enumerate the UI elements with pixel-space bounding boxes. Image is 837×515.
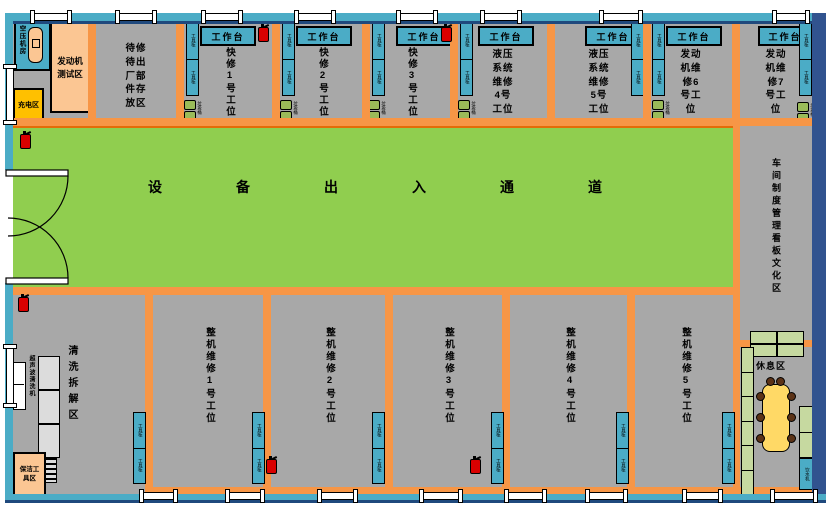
window	[588, 492, 625, 500]
tool-cabinet: 工具柜工具柜	[372, 412, 385, 484]
bay-bottom-5-label: 整机维修5号工位	[678, 327, 692, 425]
room-air-compressor: 空压机房	[14, 21, 51, 71]
rest-area-label: 休息区	[756, 359, 786, 372]
window	[118, 13, 154, 21]
window	[320, 492, 355, 500]
rest-lockers	[741, 347, 754, 495]
bay-bottom-1-label: 整机维修1号工位	[202, 327, 216, 425]
window	[297, 13, 333, 21]
equipment-passage	[13, 126, 739, 291]
chair	[787, 434, 796, 443]
wall-right	[812, 13, 826, 503]
wall-bottom-outer-line	[5, 500, 826, 503]
window	[204, 13, 240, 21]
bay-divider	[547, 13, 555, 126]
bay-divider	[88, 13, 96, 126]
bay-top-7-label: 发动 机维 修7 号工 位	[756, 48, 796, 117]
window	[773, 492, 815, 500]
window	[685, 492, 720, 500]
tool-cabinet: 工具柜工具柜	[133, 412, 146, 484]
cleaning-machine-label: 超声波清洗机	[27, 355, 36, 397]
bay-divider	[385, 293, 393, 494]
fire-extinguisher-icon	[18, 297, 29, 312]
bay-divider	[272, 13, 280, 126]
air-compressor-label: 空压机房	[16, 25, 26, 55]
tool-cabinet: 工具柜工具柜	[252, 412, 265, 484]
workbench-bay4: 工作台	[478, 26, 534, 46]
tool-cabinet: 工具柜工具柜	[799, 22, 812, 96]
bay-divider	[362, 13, 370, 126]
charging-label: 充电区	[18, 100, 39, 110]
bay-top-2-label: 快修2号工位	[315, 47, 329, 118]
bay-top-3-label: 快修3号工位	[404, 47, 418, 118]
bay-top-1-label: 快修1号工位	[222, 47, 236, 118]
bay-divider	[145, 293, 153, 494]
wash-sink-divider	[13, 384, 24, 385]
engine-test-label: 发动机 测试区	[57, 55, 83, 81]
ultrasonic-cleaning-machine	[38, 356, 60, 458]
window	[228, 492, 262, 500]
chair	[787, 413, 796, 422]
passage-label: 设备出入通道	[148, 177, 676, 197]
room-cleaning-tools: 保洁工 具区	[13, 452, 46, 496]
window	[142, 492, 175, 500]
pending-storage-label: 待修 待出 厂部 件存 放区	[113, 42, 159, 111]
bay-divider	[732, 13, 740, 126]
window	[399, 13, 435, 21]
window	[6, 347, 14, 405]
window	[6, 67, 14, 122]
window	[507, 492, 544, 500]
tool-cabinet: 工具柜工具柜	[491, 412, 504, 484]
tool-cabinet: 工具柜工具柜	[372, 22, 385, 96]
bay-top-5-label: 液压 系统 维修 5号 工位	[579, 48, 619, 117]
window	[422, 492, 460, 500]
chair	[756, 392, 765, 401]
bay-bottom-2-label: 整机维修2号工位	[322, 327, 336, 425]
double-door	[4, 166, 76, 288]
fire-extinguisher-icon	[20, 134, 31, 149]
workbench-bay2: 工作台	[296, 26, 352, 46]
rest-area-tables	[750, 331, 804, 357]
compressor-tank-valve-icon	[32, 39, 40, 48]
bay-bottom-3-label: 整机维修3号工位	[441, 327, 455, 425]
wall-top-inner-line	[13, 21, 812, 24]
bay-divider	[643, 13, 651, 126]
window	[602, 13, 640, 21]
window	[775, 13, 807, 21]
divider-strip-top	[13, 118, 812, 126]
chair	[756, 413, 765, 422]
workbench-bay6: 工作台	[666, 26, 722, 46]
chair	[756, 434, 765, 443]
water-dispenser: 饮水机	[799, 458, 813, 490]
tool-cabinet: 工具柜工具柜	[460, 22, 473, 96]
cleaning-area-label: 清洗拆解区	[64, 345, 79, 425]
tool-cabinet: 工具柜工具柜	[186, 22, 199, 96]
tool-cabinet: 工具柜工具柜	[652, 22, 665, 96]
bay-top-6-label: 发动 机维 修6 号工 位	[671, 48, 711, 117]
fire-extinguisher-icon	[266, 459, 277, 474]
fire-extinguisher-icon	[441, 27, 452, 42]
fire-extinguisher-icon	[258, 27, 269, 42]
workshop-floor-plan: 空压机房 发动机 测试区 充电区 待修 待出 厂部 件存 放区 工作台 工作台 …	[0, 0, 837, 515]
fire-extinguisher-icon	[470, 459, 481, 474]
board-culture-label: 车间制度管理看板文化区	[770, 158, 783, 296]
rest-side-cabinet	[799, 406, 813, 458]
bay-top-4-label: 液压 系统 维修 4号 工位	[483, 48, 523, 117]
rest-table	[762, 384, 790, 452]
tool-cabinet: 工具柜工具柜	[722, 412, 735, 484]
bay-bottom-4-label: 整机维修4号工位	[562, 327, 576, 425]
cleaning-tools-label: 保洁工 具区	[20, 465, 40, 483]
window	[483, 13, 519, 21]
workbench-bay1: 工作台	[200, 26, 256, 46]
room-engine-test: 发动机 测试区	[50, 22, 90, 113]
room-charging: 充电区	[13, 88, 44, 122]
tool-cabinet: 工具柜工具柜	[616, 412, 629, 484]
chair	[766, 377, 775, 386]
bay-divider	[176, 13, 184, 126]
chair	[787, 392, 796, 401]
tool-cabinet: 工具柜工具柜	[282, 22, 295, 96]
chair	[776, 377, 785, 386]
window	[33, 13, 69, 21]
